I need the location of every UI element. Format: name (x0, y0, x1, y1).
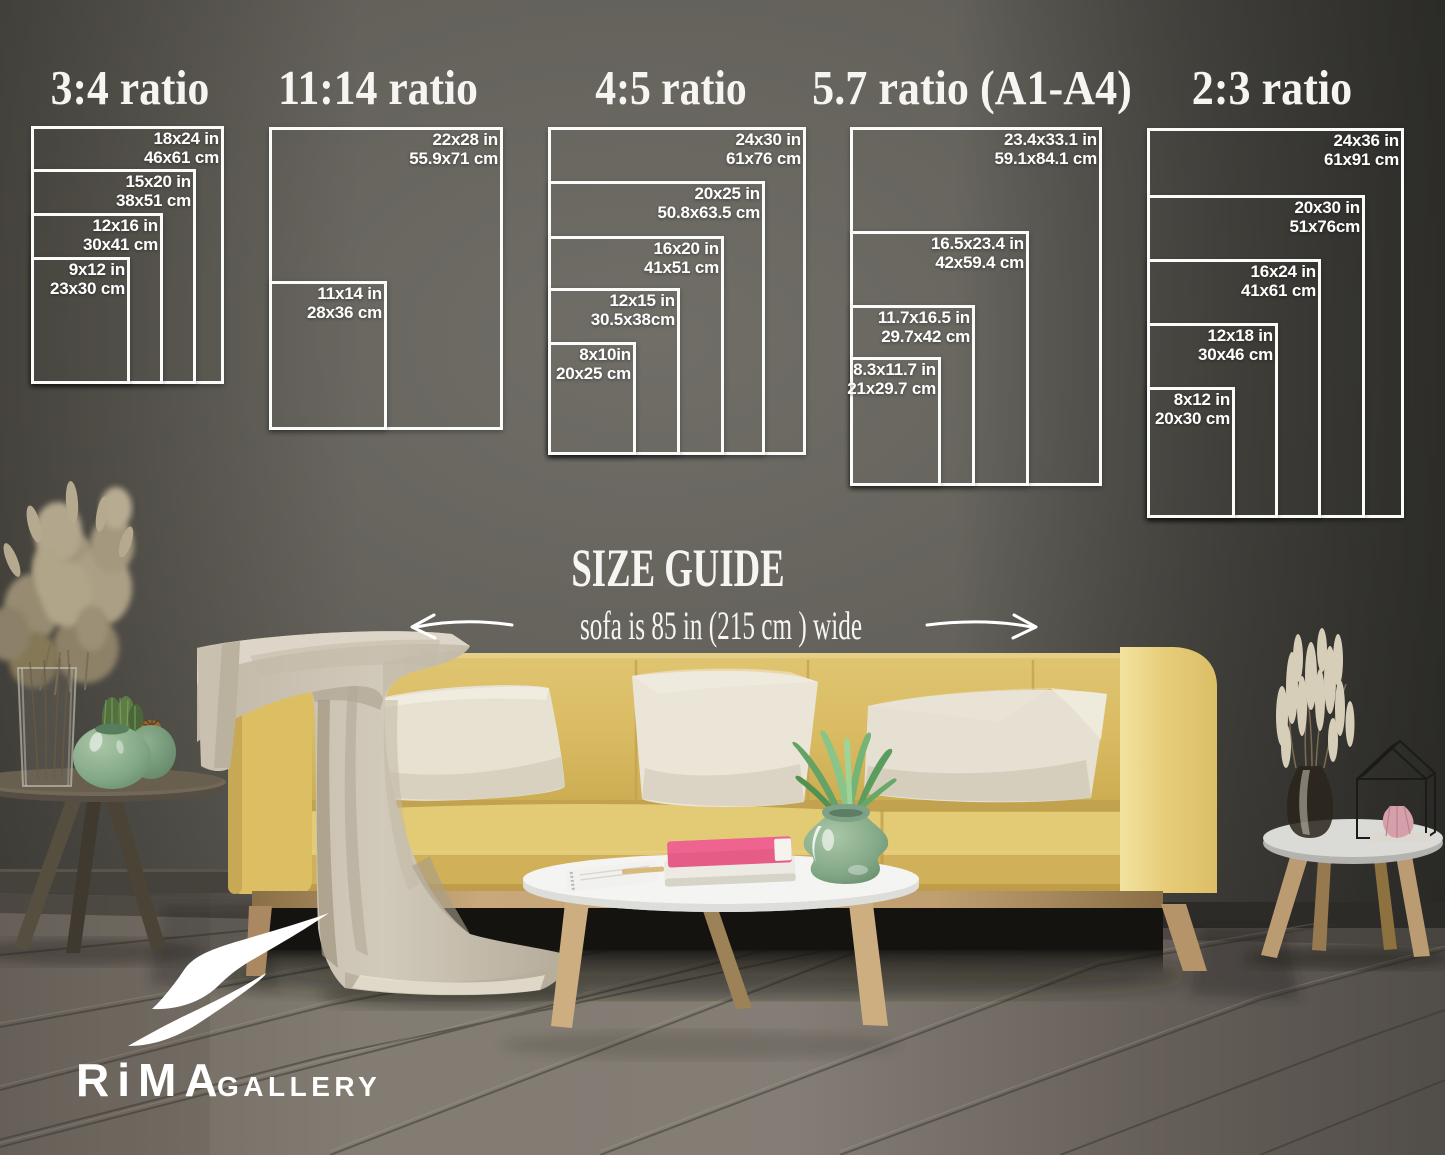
svg-text:GALLERY: GALLERY (217, 1071, 381, 1102)
svg-text:RiMA: RiMA (76, 1054, 226, 1106)
